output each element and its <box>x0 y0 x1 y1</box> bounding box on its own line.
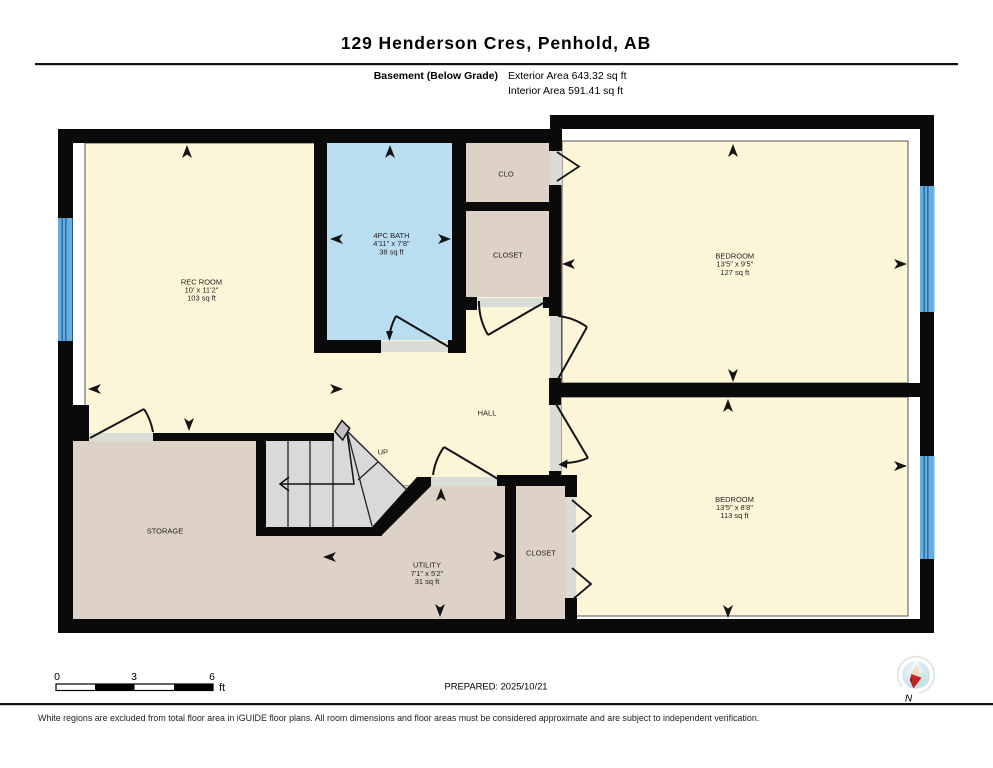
svg-text:103 sq ft: 103 sq ft <box>187 294 217 303</box>
svg-text:N: N <box>905 694 913 705</box>
svg-text:Interior Area 591.41 sq ft: Interior Area 591.41 sq ft <box>508 85 623 97</box>
svg-text:UP: UP <box>378 447 388 456</box>
svg-text:HALL: HALL <box>478 409 497 418</box>
svg-text:127 sq ft: 127 sq ft <box>720 268 750 277</box>
svg-text:CLOSET: CLOSET <box>526 549 556 558</box>
svg-text:PREPARED: 2025/10/21: PREPARED: 2025/10/21 <box>444 681 547 692</box>
svg-text:CLOSET: CLOSET <box>493 251 523 260</box>
svg-text:113 sq ft: 113 sq ft <box>720 511 749 520</box>
svg-text:STORAGE: STORAGE <box>147 527 184 536</box>
svg-text:3: 3 <box>131 671 137 683</box>
svg-text:0: 0 <box>54 671 60 683</box>
svg-text:White regions are excluded fro: White regions are excluded from total fl… <box>38 713 759 723</box>
svg-text:Basement (Below Grade): Basement (Below Grade) <box>374 70 498 82</box>
svg-text:129 Henderson Cres, Penhold, A: 129 Henderson Cres, Penhold, AB <box>341 33 651 53</box>
svg-text:38 sq ft: 38 sq ft <box>379 247 405 256</box>
svg-text:ft: ft <box>219 682 225 694</box>
svg-text:Exterior Area 643.32 sq ft: Exterior Area 643.32 sq ft <box>508 70 627 82</box>
svg-text:6: 6 <box>209 671 215 683</box>
svg-text:31 sq ft: 31 sq ft <box>415 577 441 586</box>
svg-text:CLO: CLO <box>498 169 514 178</box>
